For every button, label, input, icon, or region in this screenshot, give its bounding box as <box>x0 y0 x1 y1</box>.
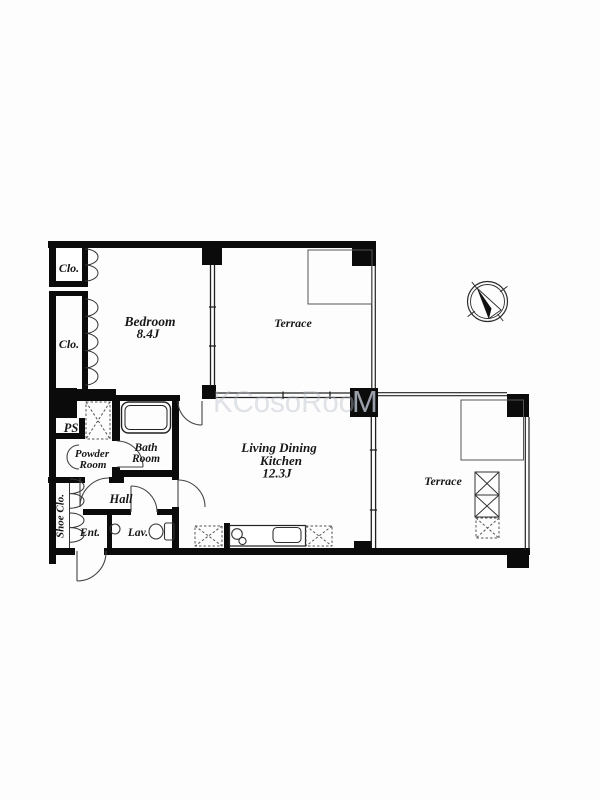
svg-text:Hall: Hall <box>109 492 133 506</box>
svg-text:Ent.: Ent. <box>79 527 100 539</box>
svg-text:PS: PS <box>64 421 79 435</box>
svg-text:8.4J: 8.4J <box>137 326 160 341</box>
svg-text:Room: Room <box>79 459 107 471</box>
svg-text:Shoe Clo.: Shoe Clo. <box>55 494 67 538</box>
svg-text:12.3J: 12.3J <box>262 466 292 481</box>
svg-text:Lav.: Lav. <box>127 527 148 539</box>
svg-text:Clo.: Clo. <box>59 337 79 351</box>
svg-text:Terrace: Terrace <box>274 316 312 330</box>
svg-text:Clo.: Clo. <box>59 261 79 275</box>
svg-text:KCosoRoo: KCosoRoo <box>213 384 355 419</box>
svg-text:M: M <box>352 384 378 419</box>
svg-text:Room: Room <box>131 453 160 465</box>
svg-text:Terrace: Terrace <box>424 474 462 488</box>
